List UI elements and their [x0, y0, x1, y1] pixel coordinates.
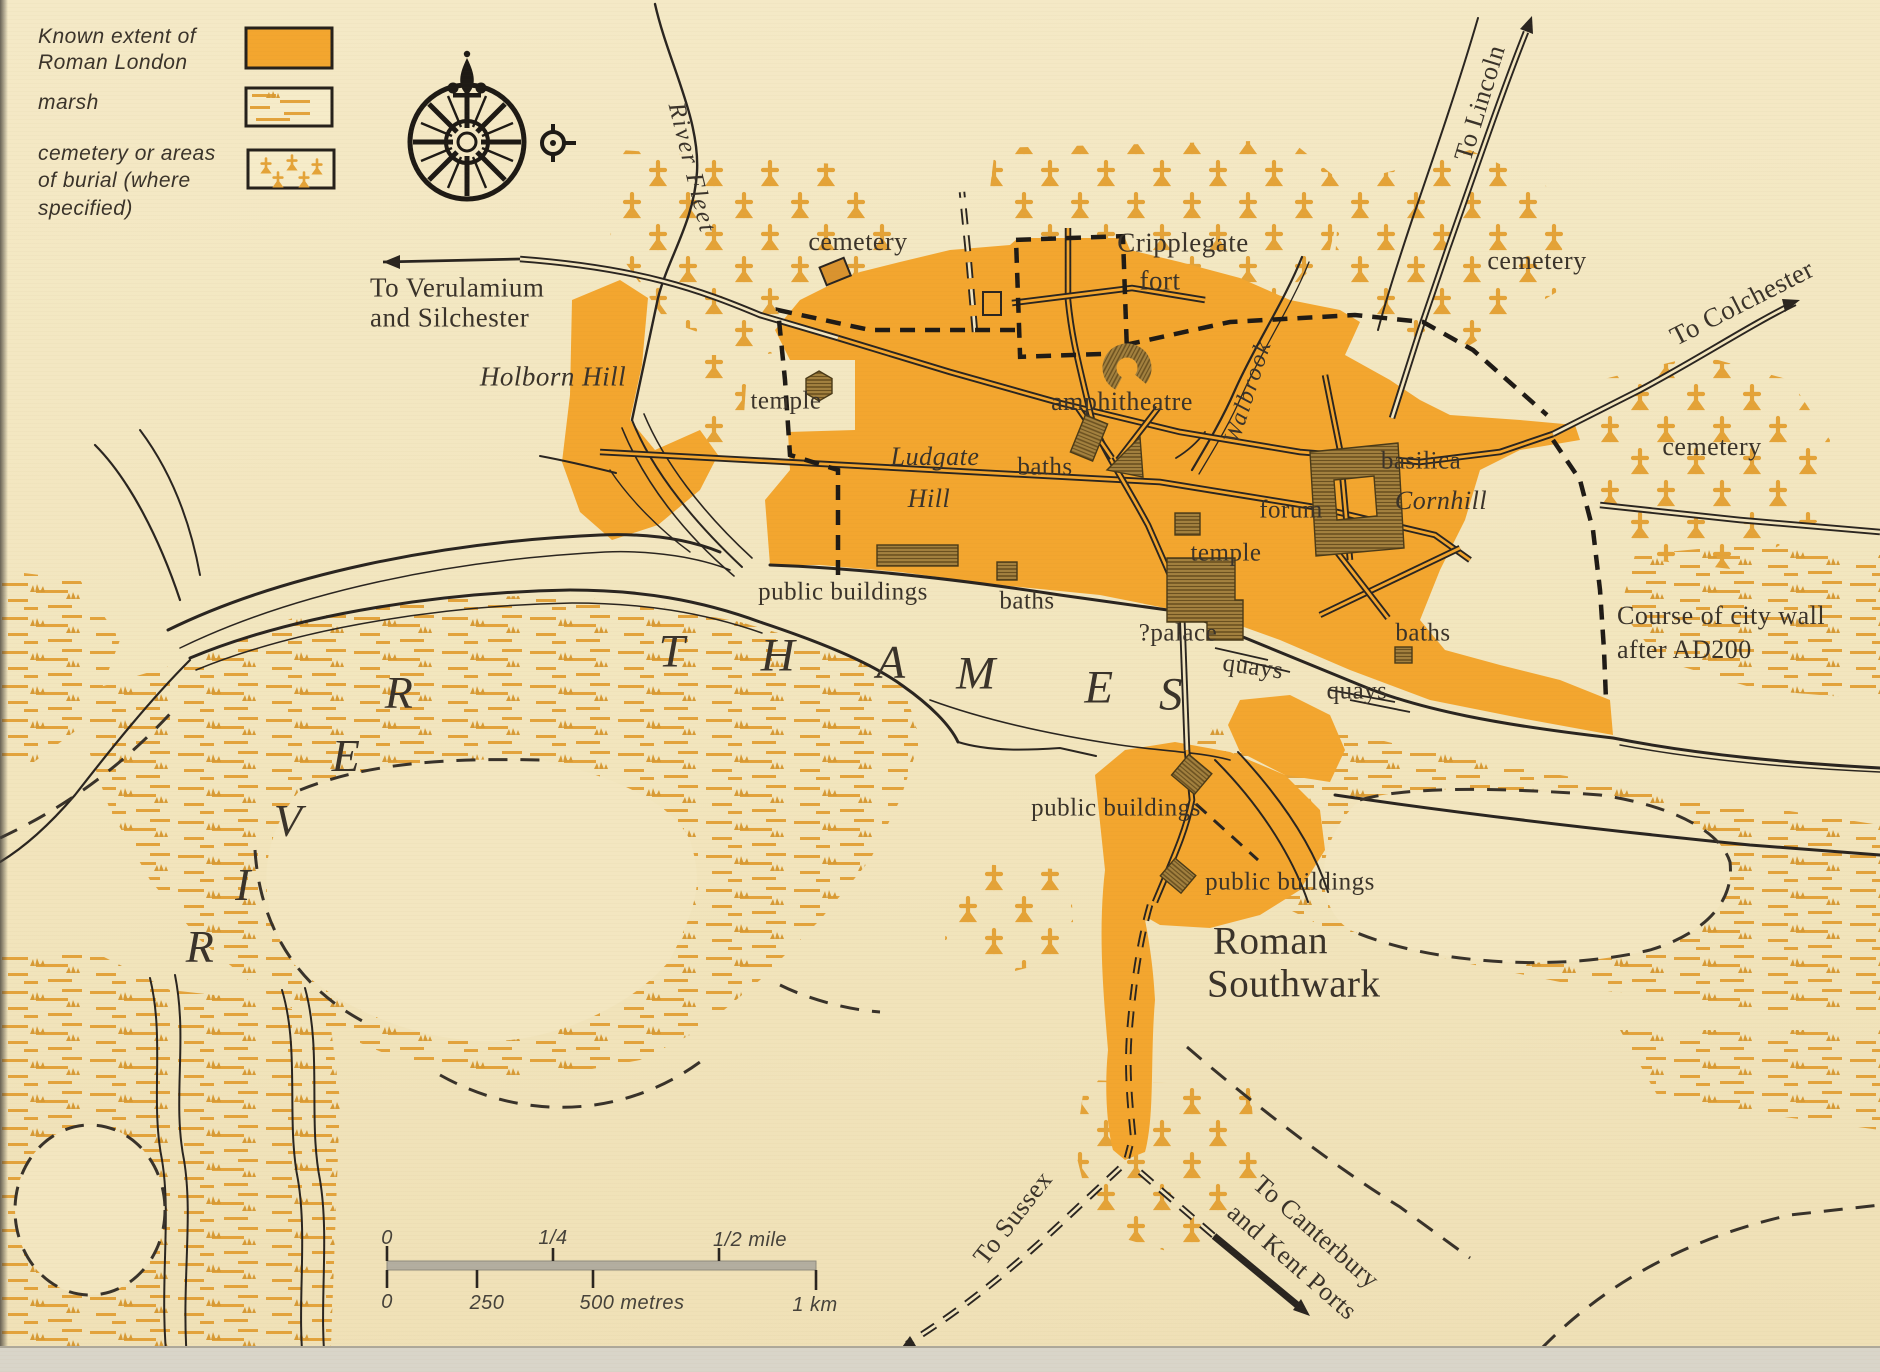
scale-metre-250: 250: [470, 1293, 505, 1313]
label-temple-west: temple: [750, 389, 821, 414]
legend-swatches: [246, 28, 334, 188]
roman-london-map: Known extent of Roman London marsh cemet…: [0, 0, 1880, 1372]
map-canvas: [0, 0, 1880, 1372]
label-cemetery-e: cemetery: [1662, 434, 1761, 460]
label-palace: ?palace: [1139, 621, 1217, 646]
compass-rose-icon: [410, 51, 576, 199]
scale-metre-500: 500 metres: [579, 1293, 684, 1313]
compass-east-knob-icon: [542, 124, 576, 162]
page-edge-left: [0, 0, 8, 1372]
label-cemetery-nw: cemetery: [808, 229, 907, 255]
river-letter-e1: E: [332, 733, 361, 779]
label-holborn-hill: Holborn Hill: [480, 364, 626, 391]
river-letter-r2: R: [385, 670, 414, 716]
label-ludgate-hill: Hill: [908, 486, 950, 512]
label-public-buildings-n: public buildings: [758, 580, 928, 605]
label-amphitheatre: amphitheatre: [1051, 389, 1193, 415]
label-public-buildings-s1: public buildings: [1031, 796, 1201, 821]
label-to-verulamium: To Verulamium: [370, 275, 544, 302]
thames-letter-t: T: [659, 629, 686, 676]
label-temple-centre: temple: [1190, 541, 1261, 566]
label-quays-east: quays: [1327, 679, 1388, 704]
scale-mile-quarter: 1/4: [538, 1228, 567, 1248]
scale-metre-1km: 1 km: [792, 1295, 837, 1315]
thames-letter-m: M: [956, 651, 996, 698]
label-forum: forum: [1259, 498, 1323, 523]
scale-metre-0: 0: [381, 1292, 393, 1312]
baths-se-building: [1395, 647, 1412, 663]
thames-letter-h: H: [761, 633, 795, 680]
river-letter-i: I: [235, 862, 251, 908]
thames-letter-a: A: [876, 640, 905, 687]
scale-bar: [387, 1246, 816, 1290]
page-edge-bottom: [0, 1346, 1880, 1372]
label-basilica: basilica: [1381, 449, 1461, 474]
scale-mile-half: 1/2 mile: [713, 1230, 787, 1250]
legend-label-roman-extent: Known extent of Roman London: [38, 24, 223, 77]
legend-label-cemetery: cemetery or areas of burial (where speci…: [38, 140, 238, 222]
roman-extent-swatch: [246, 28, 332, 68]
public-buildings-north-building: [877, 545, 958, 566]
label-baths-se: baths: [1395, 621, 1450, 646]
label-roman: Roman: [1213, 922, 1328, 961]
label-cemetery-n: cemetery: [1487, 248, 1586, 274]
label-ludgate: Ludgate: [891, 444, 980, 470]
river-letter-r1: R: [186, 924, 215, 970]
label-and-silchester: and Silchester: [370, 305, 529, 332]
compass-fleur-icon: [448, 51, 487, 98]
river-letter-v: V: [274, 798, 303, 844]
label-city-wall-line1: Course of city wall: [1617, 603, 1825, 629]
label-baths-waterfront: baths: [999, 589, 1054, 614]
label-cornhill: Cornhill: [1395, 488, 1487, 514]
label-public-buildings-s2: public buildings: [1205, 870, 1375, 895]
label-southwark: Southwark: [1207, 965, 1381, 1004]
label-cripplegate: Cripplegate: [1117, 230, 1248, 257]
temple-centre-building: [1175, 513, 1200, 535]
label-baths-west: baths: [1017, 455, 1072, 480]
thames-letter-s: S: [1159, 672, 1183, 719]
scale-mile-0: 0: [381, 1228, 393, 1248]
legend-label-marsh: marsh: [38, 92, 99, 113]
thames-letter-e: E: [1084, 665, 1113, 712]
label-city-wall-line2: after AD200: [1617, 637, 1752, 663]
label-fort: fort: [1140, 268, 1181, 295]
